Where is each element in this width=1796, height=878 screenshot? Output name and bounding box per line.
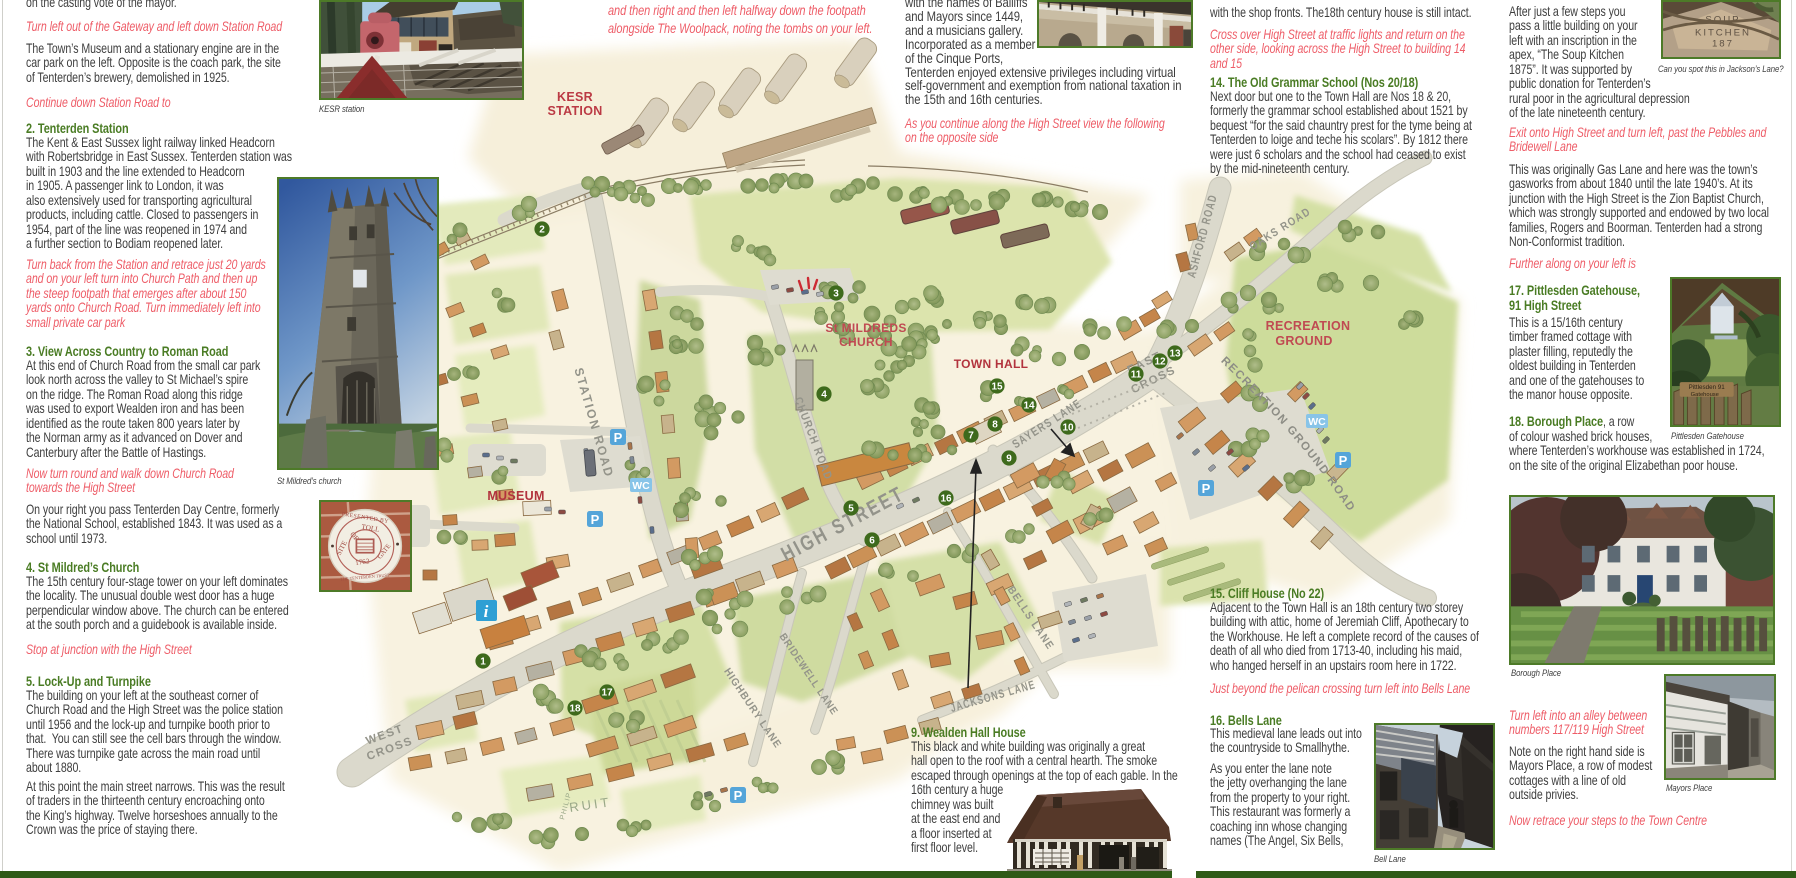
svg-text:P: P: [1202, 481, 1211, 496]
svg-text:3: 3: [833, 289, 839, 300]
svg-text:Pittlesden 91: Pittlesden 91: [1689, 384, 1726, 391]
svg-text:1: 1: [480, 657, 486, 668]
svg-text:Gatehouse: Gatehouse: [1691, 392, 1719, 398]
svg-text:7: 7: [968, 431, 974, 442]
svg-text:P: P: [591, 512, 600, 527]
svg-text:14: 14: [1023, 401, 1035, 412]
svg-text:8: 8: [992, 420, 998, 431]
svg-text:18: 18: [569, 704, 581, 715]
svg-text:2: 2: [539, 225, 545, 236]
svg-text:15: 15: [991, 382, 1003, 393]
svg-text:6: 6: [869, 536, 875, 547]
svg-text:WC: WC: [1308, 416, 1326, 428]
svg-text:4: 4: [821, 390, 827, 401]
svg-text:KESR: KESR: [557, 90, 593, 104]
svg-text:TOWN HALL: TOWN HALL: [954, 357, 1028, 371]
svg-text:KITCHEN: KITCHEN: [1695, 28, 1751, 39]
svg-text:9: 9: [1006, 454, 1012, 465]
svg-text:17: 17: [601, 688, 613, 699]
svg-text:5: 5: [848, 504, 854, 515]
svg-text:GROUND: GROUND: [1275, 334, 1332, 348]
svg-text:12: 12: [1154, 357, 1166, 368]
svg-text:16: 16: [940, 494, 952, 505]
svg-text:STATION: STATION: [547, 104, 602, 118]
svg-text:St MILDREDS: St MILDREDS: [825, 321, 906, 335]
svg-text:MUSEUM: MUSEUM: [487, 489, 544, 503]
svg-text:i: i: [484, 602, 489, 621]
svg-text:WC: WC: [632, 480, 650, 492]
svg-text:10: 10: [1062, 423, 1074, 434]
svg-text:P: P: [614, 430, 623, 445]
svg-text:13: 13: [1169, 349, 1181, 360]
svg-text:CHURCH: CHURCH: [839, 335, 893, 349]
svg-text:11: 11: [1131, 370, 1142, 381]
svg-text:187: 187: [1712, 39, 1734, 50]
svg-text:P: P: [734, 788, 743, 803]
svg-text:RECREATION: RECREATION: [1266, 319, 1351, 333]
svg-text:P: P: [1339, 453, 1348, 468]
